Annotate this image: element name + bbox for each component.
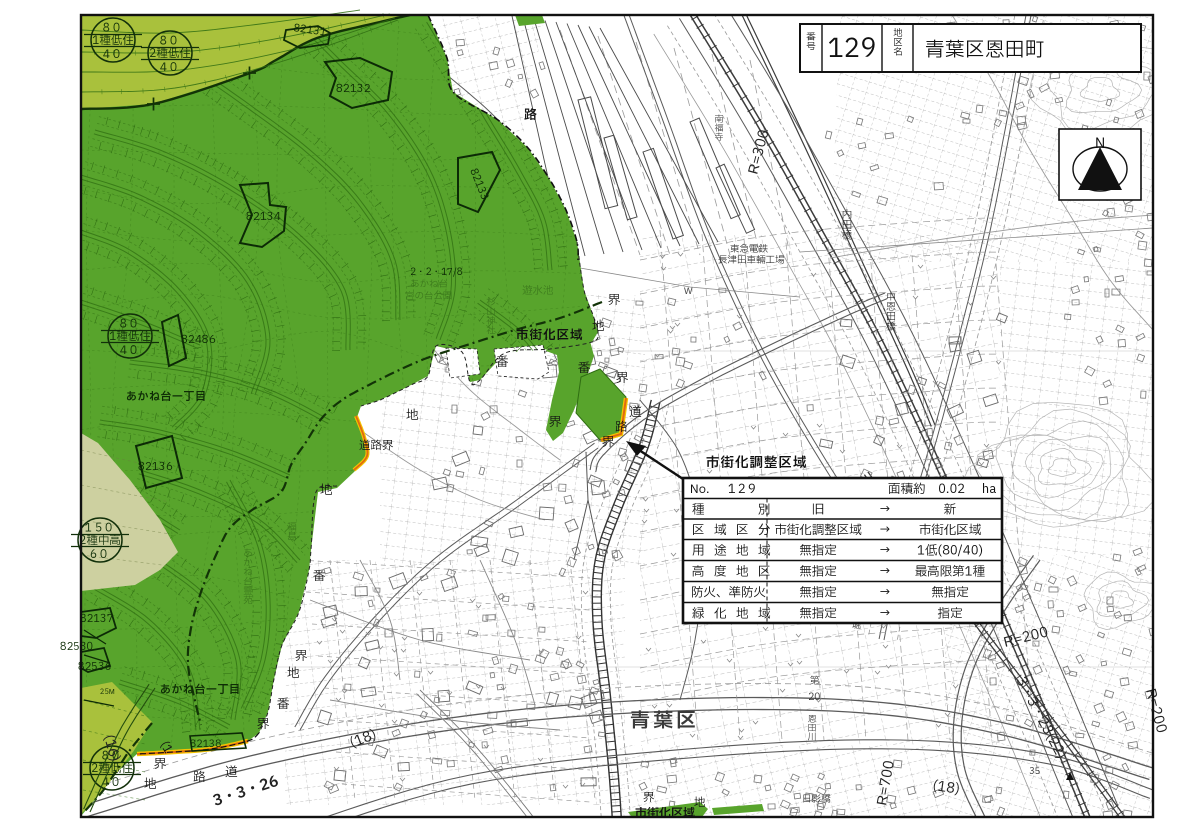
svg-text:度: 度 xyxy=(714,563,727,582)
svg-text:0.02: 0.02 xyxy=(938,480,965,499)
svg-text:路: 路 xyxy=(524,105,537,125)
svg-text:20: 20 xyxy=(808,690,821,705)
svg-text:60: 60 xyxy=(90,547,111,564)
svg-text:最高限第1種: 最高限第1種 xyxy=(915,563,986,582)
svg-text:40: 40 xyxy=(160,60,181,77)
svg-text:82137: 82137 xyxy=(80,611,113,627)
svg-text:無指定: 無指定 xyxy=(931,584,969,603)
svg-text:域: 域 xyxy=(758,604,771,623)
svg-text:恩田川: 恩田川 xyxy=(807,712,816,744)
svg-text:道: 道 xyxy=(225,763,238,782)
svg-text:界: 界 xyxy=(616,369,629,388)
svg-text:青葉区: 青葉区 xyxy=(630,706,699,736)
svg-text:地: 地 xyxy=(144,775,157,794)
svg-text:番: 番 xyxy=(313,567,326,586)
svg-text:中恩田橋: 中恩田橋 xyxy=(885,290,896,335)
svg-text:あかね台霊苑: あかね台霊苑 xyxy=(243,547,253,609)
svg-text:指定: 指定 xyxy=(937,604,962,623)
svg-text:区: 区 xyxy=(758,563,771,582)
svg-text:W: W xyxy=(684,284,693,298)
svg-text:化: 化 xyxy=(714,604,727,623)
svg-text:内田橋: 内田橋 xyxy=(842,207,853,244)
svg-text:南福寺: 南福寺 xyxy=(714,112,723,144)
svg-text:界: 界 xyxy=(602,433,615,452)
svg-text:129: 129 xyxy=(827,30,876,69)
svg-text:番: 番 xyxy=(578,359,591,378)
svg-text:市街化区域: 市街化区域 xyxy=(635,805,696,823)
svg-text:種: 種 xyxy=(692,500,705,519)
svg-text:路: 路 xyxy=(615,418,628,437)
svg-text:防火、準防火: 防火、準防火 xyxy=(691,584,767,603)
svg-text:→: → xyxy=(878,562,891,582)
svg-text:→: → xyxy=(878,541,891,561)
svg-text:あかね台一丁目: あかね台一丁目 xyxy=(126,388,207,405)
svg-text:市街化区域: 市街化区域 xyxy=(516,326,584,345)
svg-text:別: 別 xyxy=(758,500,771,519)
svg-text:無指定: 無指定 xyxy=(799,563,837,582)
svg-text:遊水池: 遊水池 xyxy=(522,283,554,299)
svg-text:杉山神社: 杉山神社 xyxy=(486,296,496,339)
svg-text:地区名: 地区名 xyxy=(893,27,903,60)
svg-text:界: 界 xyxy=(608,291,621,310)
svg-text:途: 途 xyxy=(714,542,727,561)
svg-text:新: 新 xyxy=(944,500,957,519)
svg-text:82530: 82530 xyxy=(60,639,93,655)
svg-text:道路界: 道路界 xyxy=(359,438,394,455)
svg-text:82132: 82132 xyxy=(336,80,371,97)
svg-text:→: → xyxy=(878,603,891,623)
svg-text:地: 地 xyxy=(592,317,605,336)
svg-text:地: 地 xyxy=(694,795,706,812)
svg-text:市街化調整区域: 市街化調整区域 xyxy=(774,521,862,540)
svg-text:市街化区域: 市街化区域 xyxy=(919,521,982,540)
svg-text:→: → xyxy=(878,499,891,519)
svg-text:→: → xyxy=(878,583,891,603)
svg-text:長津田車輛工場: 長津田車輛工場 xyxy=(718,254,785,268)
svg-text:界: 界 xyxy=(549,413,562,432)
svg-text:番: 番 xyxy=(496,353,509,372)
svg-text:道: 道 xyxy=(629,403,642,422)
svg-text:路: 路 xyxy=(193,768,206,787)
svg-text:82536: 82536 xyxy=(78,659,111,675)
svg-text:40: 40 xyxy=(102,775,123,792)
svg-text:用: 用 xyxy=(692,542,705,561)
svg-text:旧: 旧 xyxy=(812,500,825,519)
svg-text:分: 分 xyxy=(758,521,771,540)
svg-text:地: 地 xyxy=(736,542,749,561)
svg-text:地: 地 xyxy=(287,664,300,683)
svg-text:地: 地 xyxy=(736,563,749,582)
svg-text:宮の台公園: 宮の台公園 xyxy=(405,290,453,304)
svg-text:界: 界 xyxy=(257,715,270,734)
svg-text:無指定: 無指定 xyxy=(799,604,837,623)
svg-text:40: 40 xyxy=(103,47,124,64)
svg-text:界: 界 xyxy=(154,755,167,774)
svg-text:129: 129 xyxy=(728,480,758,499)
svg-text:域: 域 xyxy=(758,542,771,561)
svg-text:市街化調整区域: 市街化調整区域 xyxy=(706,453,808,473)
svg-text:(18): (18) xyxy=(931,776,961,801)
svg-text:区: 区 xyxy=(736,521,749,540)
svg-text:第: 第 xyxy=(809,674,820,689)
svg-text:1低(80/40): 1低(80/40) xyxy=(917,542,983,561)
svg-text:無指定: 無指定 xyxy=(799,542,837,561)
svg-text:地: 地 xyxy=(406,406,419,425)
svg-text:緑: 緑 xyxy=(692,604,705,623)
svg-text:82486: 82486 xyxy=(181,331,216,348)
svg-text:ha: ha xyxy=(982,480,996,499)
svg-text:域: 域 xyxy=(714,521,727,540)
svg-text:無指定: 無指定 xyxy=(799,584,837,603)
svg-text:82136: 82136 xyxy=(138,458,173,475)
svg-text:35: 35 xyxy=(1029,764,1040,778)
svg-text:地: 地 xyxy=(736,604,749,623)
svg-text:40: 40 xyxy=(120,343,141,360)
svg-text:25M: 25M xyxy=(100,688,115,698)
svg-text:No.: No. xyxy=(690,481,709,499)
svg-text:番: 番 xyxy=(277,695,290,714)
svg-text:高: 高 xyxy=(692,563,705,582)
svg-text:82138: 82138 xyxy=(190,737,222,752)
svg-text:→: → xyxy=(878,520,891,540)
svg-text:番号: 番号 xyxy=(806,31,816,55)
svg-text:82134: 82134 xyxy=(246,208,281,225)
svg-text:あかね台一丁目: あかね台一丁目 xyxy=(160,681,241,698)
svg-text:区: 区 xyxy=(692,521,705,540)
svg-text:地: 地 xyxy=(320,481,333,500)
svg-text:面積約: 面積約 xyxy=(888,480,926,499)
svg-text:青葉区恩田町: 青葉区恩田町 xyxy=(925,35,1045,65)
svg-text:福島: 福島 xyxy=(286,521,297,545)
svg-text:日影橋: 日影橋 xyxy=(802,793,831,807)
